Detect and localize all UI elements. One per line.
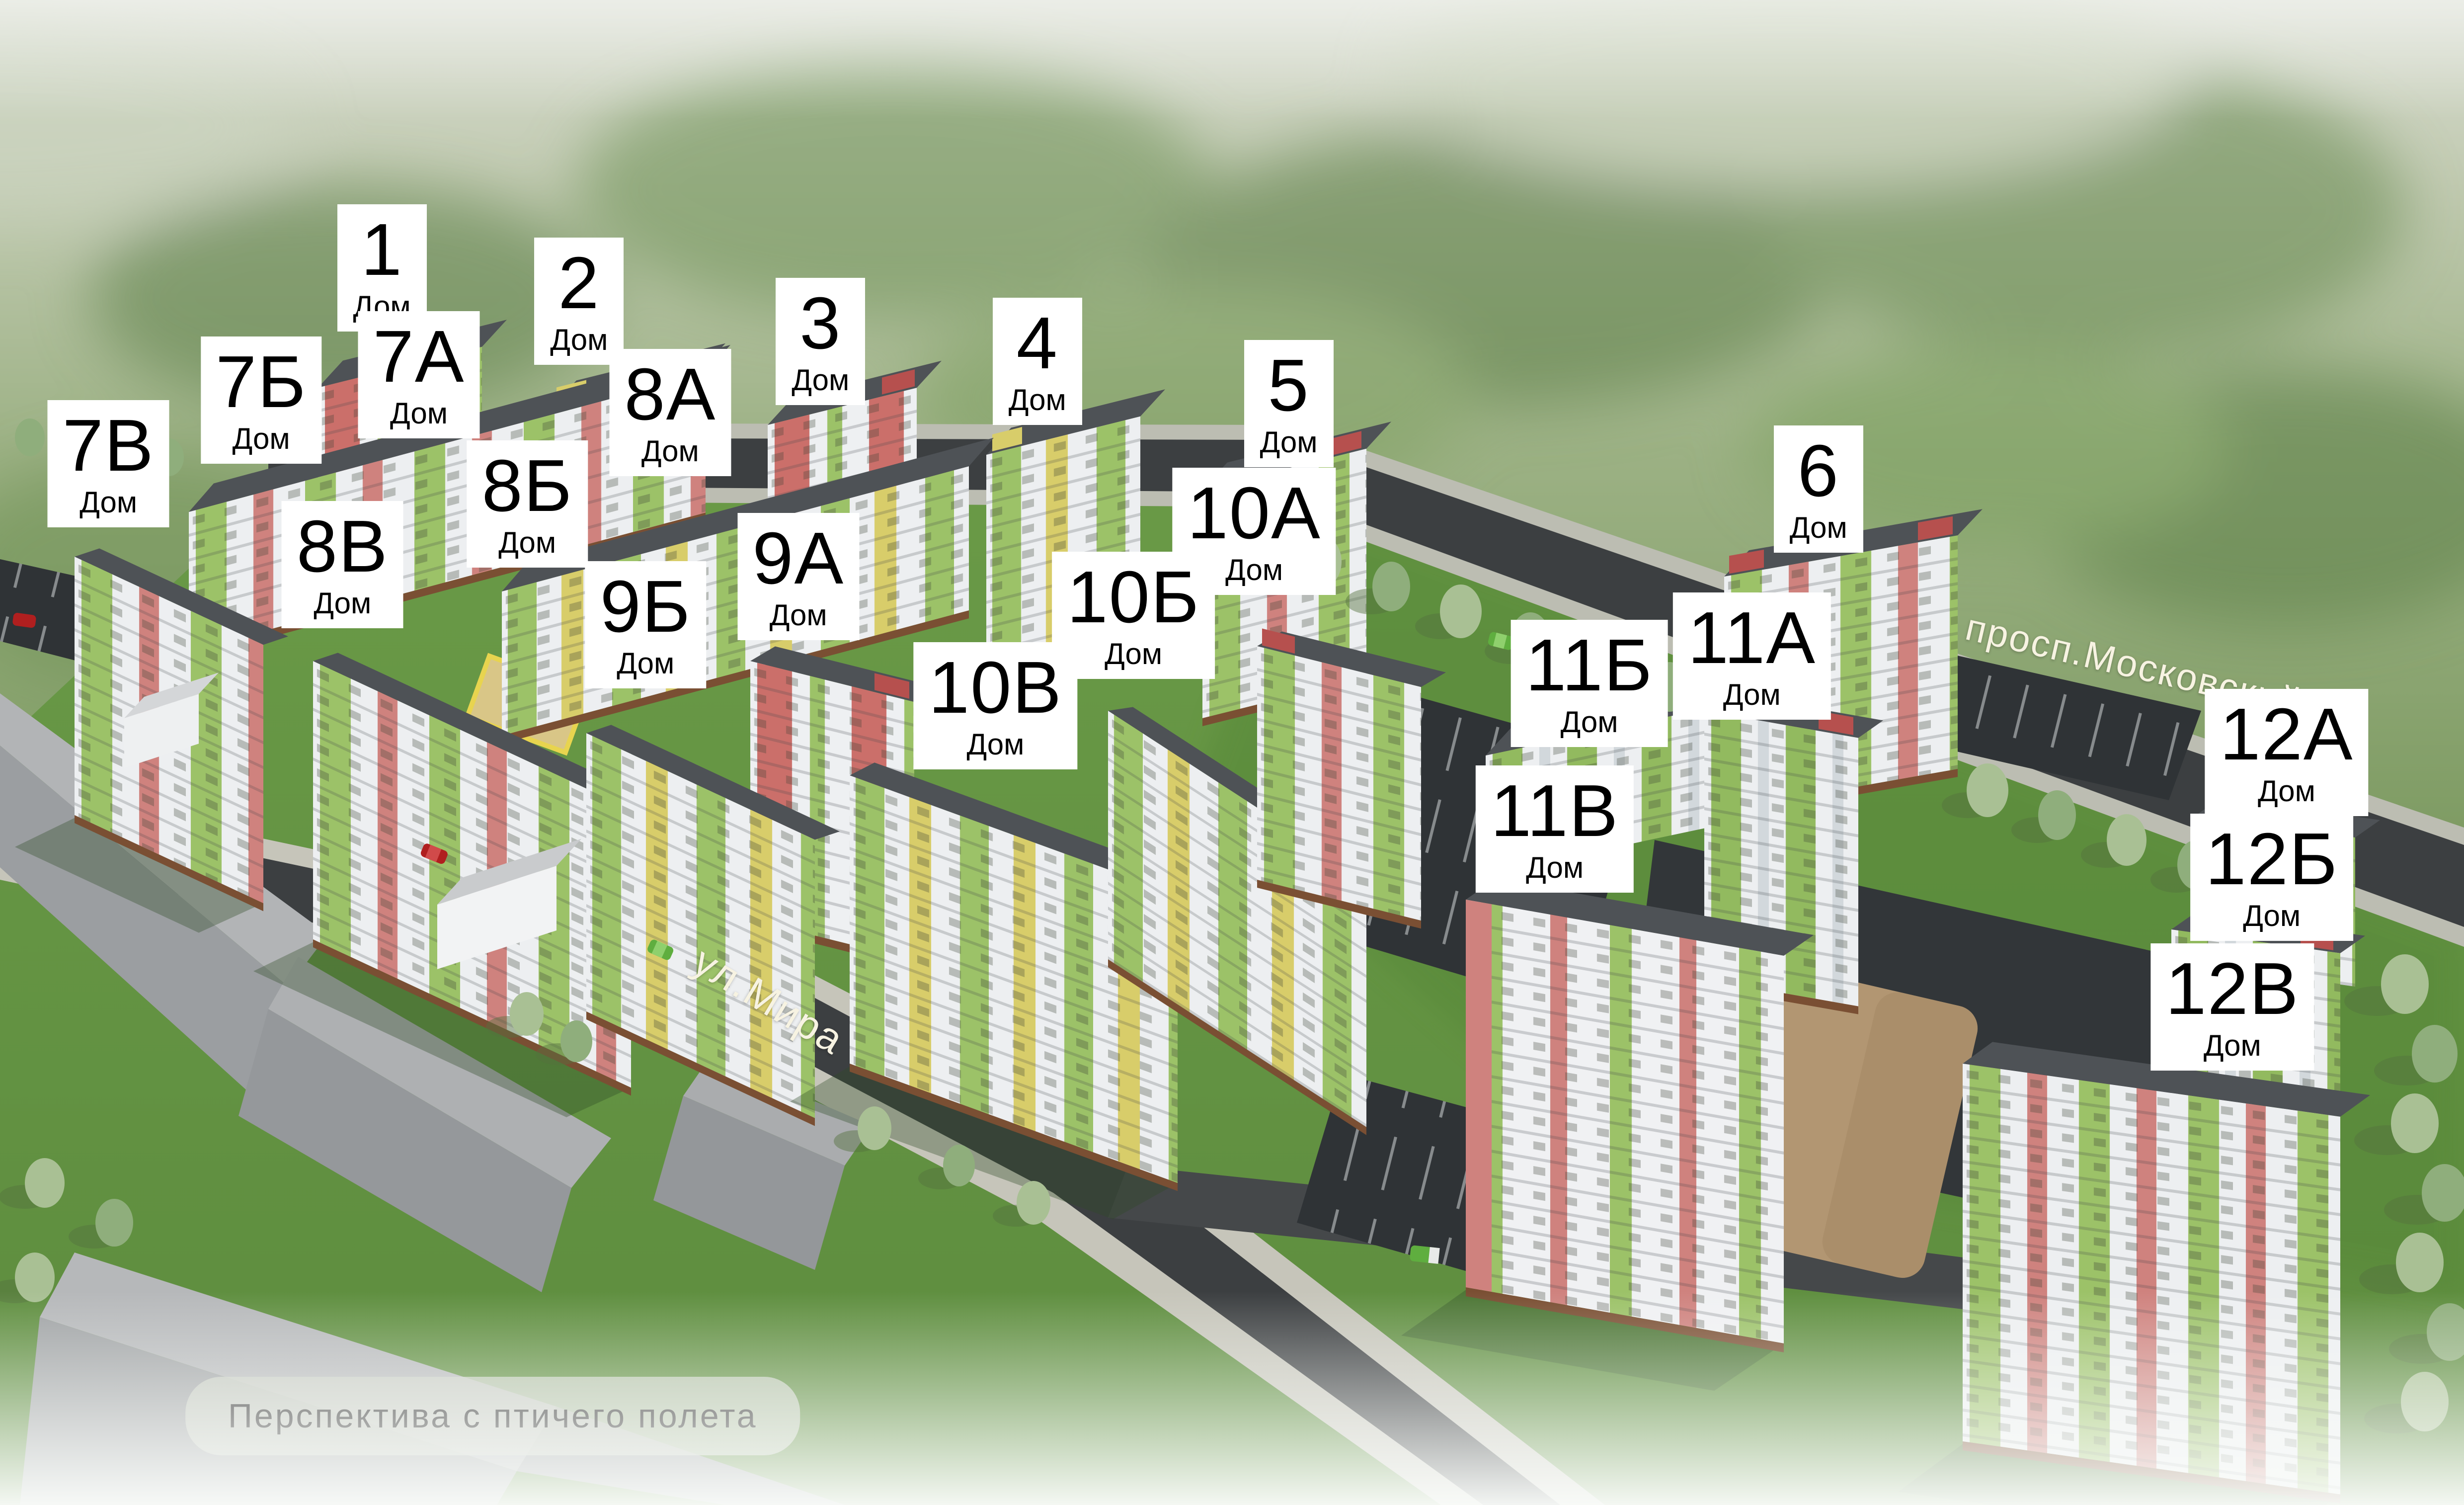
building-sub-label: Дом: [482, 528, 573, 558]
street-label-mira: ул.Мира: [685, 938, 853, 1064]
building-label[interactable]: 11В Дом: [1476, 765, 1634, 893]
building-label[interactable]: 7А Дом: [358, 311, 480, 438]
building-number: 11В: [1491, 774, 1619, 848]
building-sub-label: Дом: [1491, 853, 1619, 883]
building-sub-label: Дом: [1789, 513, 1848, 543]
building-number: 8В: [297, 510, 389, 584]
building-number: 8А: [624, 358, 716, 431]
building-sub-label: Дом: [791, 365, 850, 395]
building-label[interactable]: 9Б Дом: [585, 561, 706, 688]
building-number: 11А: [1688, 601, 1816, 675]
building-sub-label: Дом: [600, 649, 691, 678]
masterplan-view: ул.Мира просп.Московский 1 Дом 2 Дом 3 Д…: [0, 0, 2464, 1505]
building-number: 10Б: [1067, 561, 1200, 634]
building-number: 7А: [373, 320, 465, 394]
building-label[interactable]: 7Б Дом: [201, 336, 321, 464]
building-number: 9Б: [600, 570, 691, 644]
building-label[interactable]: 2 Дом: [534, 238, 624, 365]
building-label[interactable]: 5 Дом: [1244, 340, 1334, 467]
building-number: 6: [1789, 434, 1848, 508]
building-number: 12А: [2220, 698, 2353, 771]
labels-layer: ул.Мира просп.Московский 1 Дом 2 Дом 3 Д…: [0, 0, 2464, 1505]
building-number: 2: [549, 247, 609, 320]
building-sub-label: Дом: [63, 488, 155, 517]
building-label[interactable]: 7В Дом: [48, 400, 169, 527]
building-label[interactable]: 9А Дом: [737, 513, 859, 640]
building-number: 10В: [929, 651, 1062, 725]
building-sub-label: Дом: [1525, 707, 1653, 737]
building-number: 3: [791, 287, 850, 360]
building-label[interactable]: 11Б Дом: [1510, 620, 1668, 747]
building-number: 10А: [1187, 477, 1321, 550]
building-sub-label: Дом: [752, 600, 844, 630]
building-sub-label: Дом: [549, 325, 609, 355]
building-number: 12В: [2165, 952, 2299, 1026]
building-label[interactable]: 8В Дом: [282, 501, 403, 628]
building-label[interactable]: 4 Дом: [993, 298, 1082, 425]
building-label[interactable]: 11А Дом: [1673, 592, 1831, 720]
building-sub-label: Дом: [929, 730, 1062, 759]
building-sub-label: Дом: [297, 588, 389, 618]
building-sub-label: Дом: [2165, 1031, 2299, 1061]
building-sub-label: Дом: [373, 399, 465, 428]
building-sub-label: Дом: [1688, 680, 1816, 710]
building-number: 9А: [752, 522, 844, 595]
building-label[interactable]: 3 Дом: [776, 278, 865, 405]
building-sub-label: Дом: [2205, 901, 2338, 931]
building-sub-label: Дом: [216, 424, 307, 454]
building-number: 7В: [63, 409, 155, 483]
building-sub-label: Дом: [624, 436, 716, 466]
building-number: 12Б: [2205, 823, 2338, 896]
building-label[interactable]: 12Б Дом: [2190, 814, 2353, 941]
building-label[interactable]: 8А Дом: [609, 349, 731, 476]
caption-pill: Перспектива с птичего полета: [185, 1377, 800, 1455]
building-label[interactable]: 12А Дом: [2205, 689, 2368, 816]
building-label[interactable]: 6 Дом: [1774, 425, 1863, 553]
building-sub-label: Дом: [2220, 776, 2353, 806]
building-number: 5: [1259, 349, 1319, 422]
building-number: 8Б: [482, 449, 573, 523]
building-label[interactable]: 8Б Дом: [467, 440, 588, 568]
building-number: 11Б: [1525, 629, 1653, 702]
building-number: 7Б: [216, 345, 307, 419]
building-number: 1: [352, 213, 412, 287]
building-sub-label: Дом: [1259, 427, 1319, 457]
building-sub-label: Дом: [1008, 385, 1067, 415]
building-label[interactable]: 10В Дом: [914, 642, 1077, 769]
building-label[interactable]: 12В Дом: [2150, 943, 2314, 1071]
building-number: 4: [1008, 307, 1067, 380]
building-sub-label: Дом: [1067, 639, 1200, 669]
